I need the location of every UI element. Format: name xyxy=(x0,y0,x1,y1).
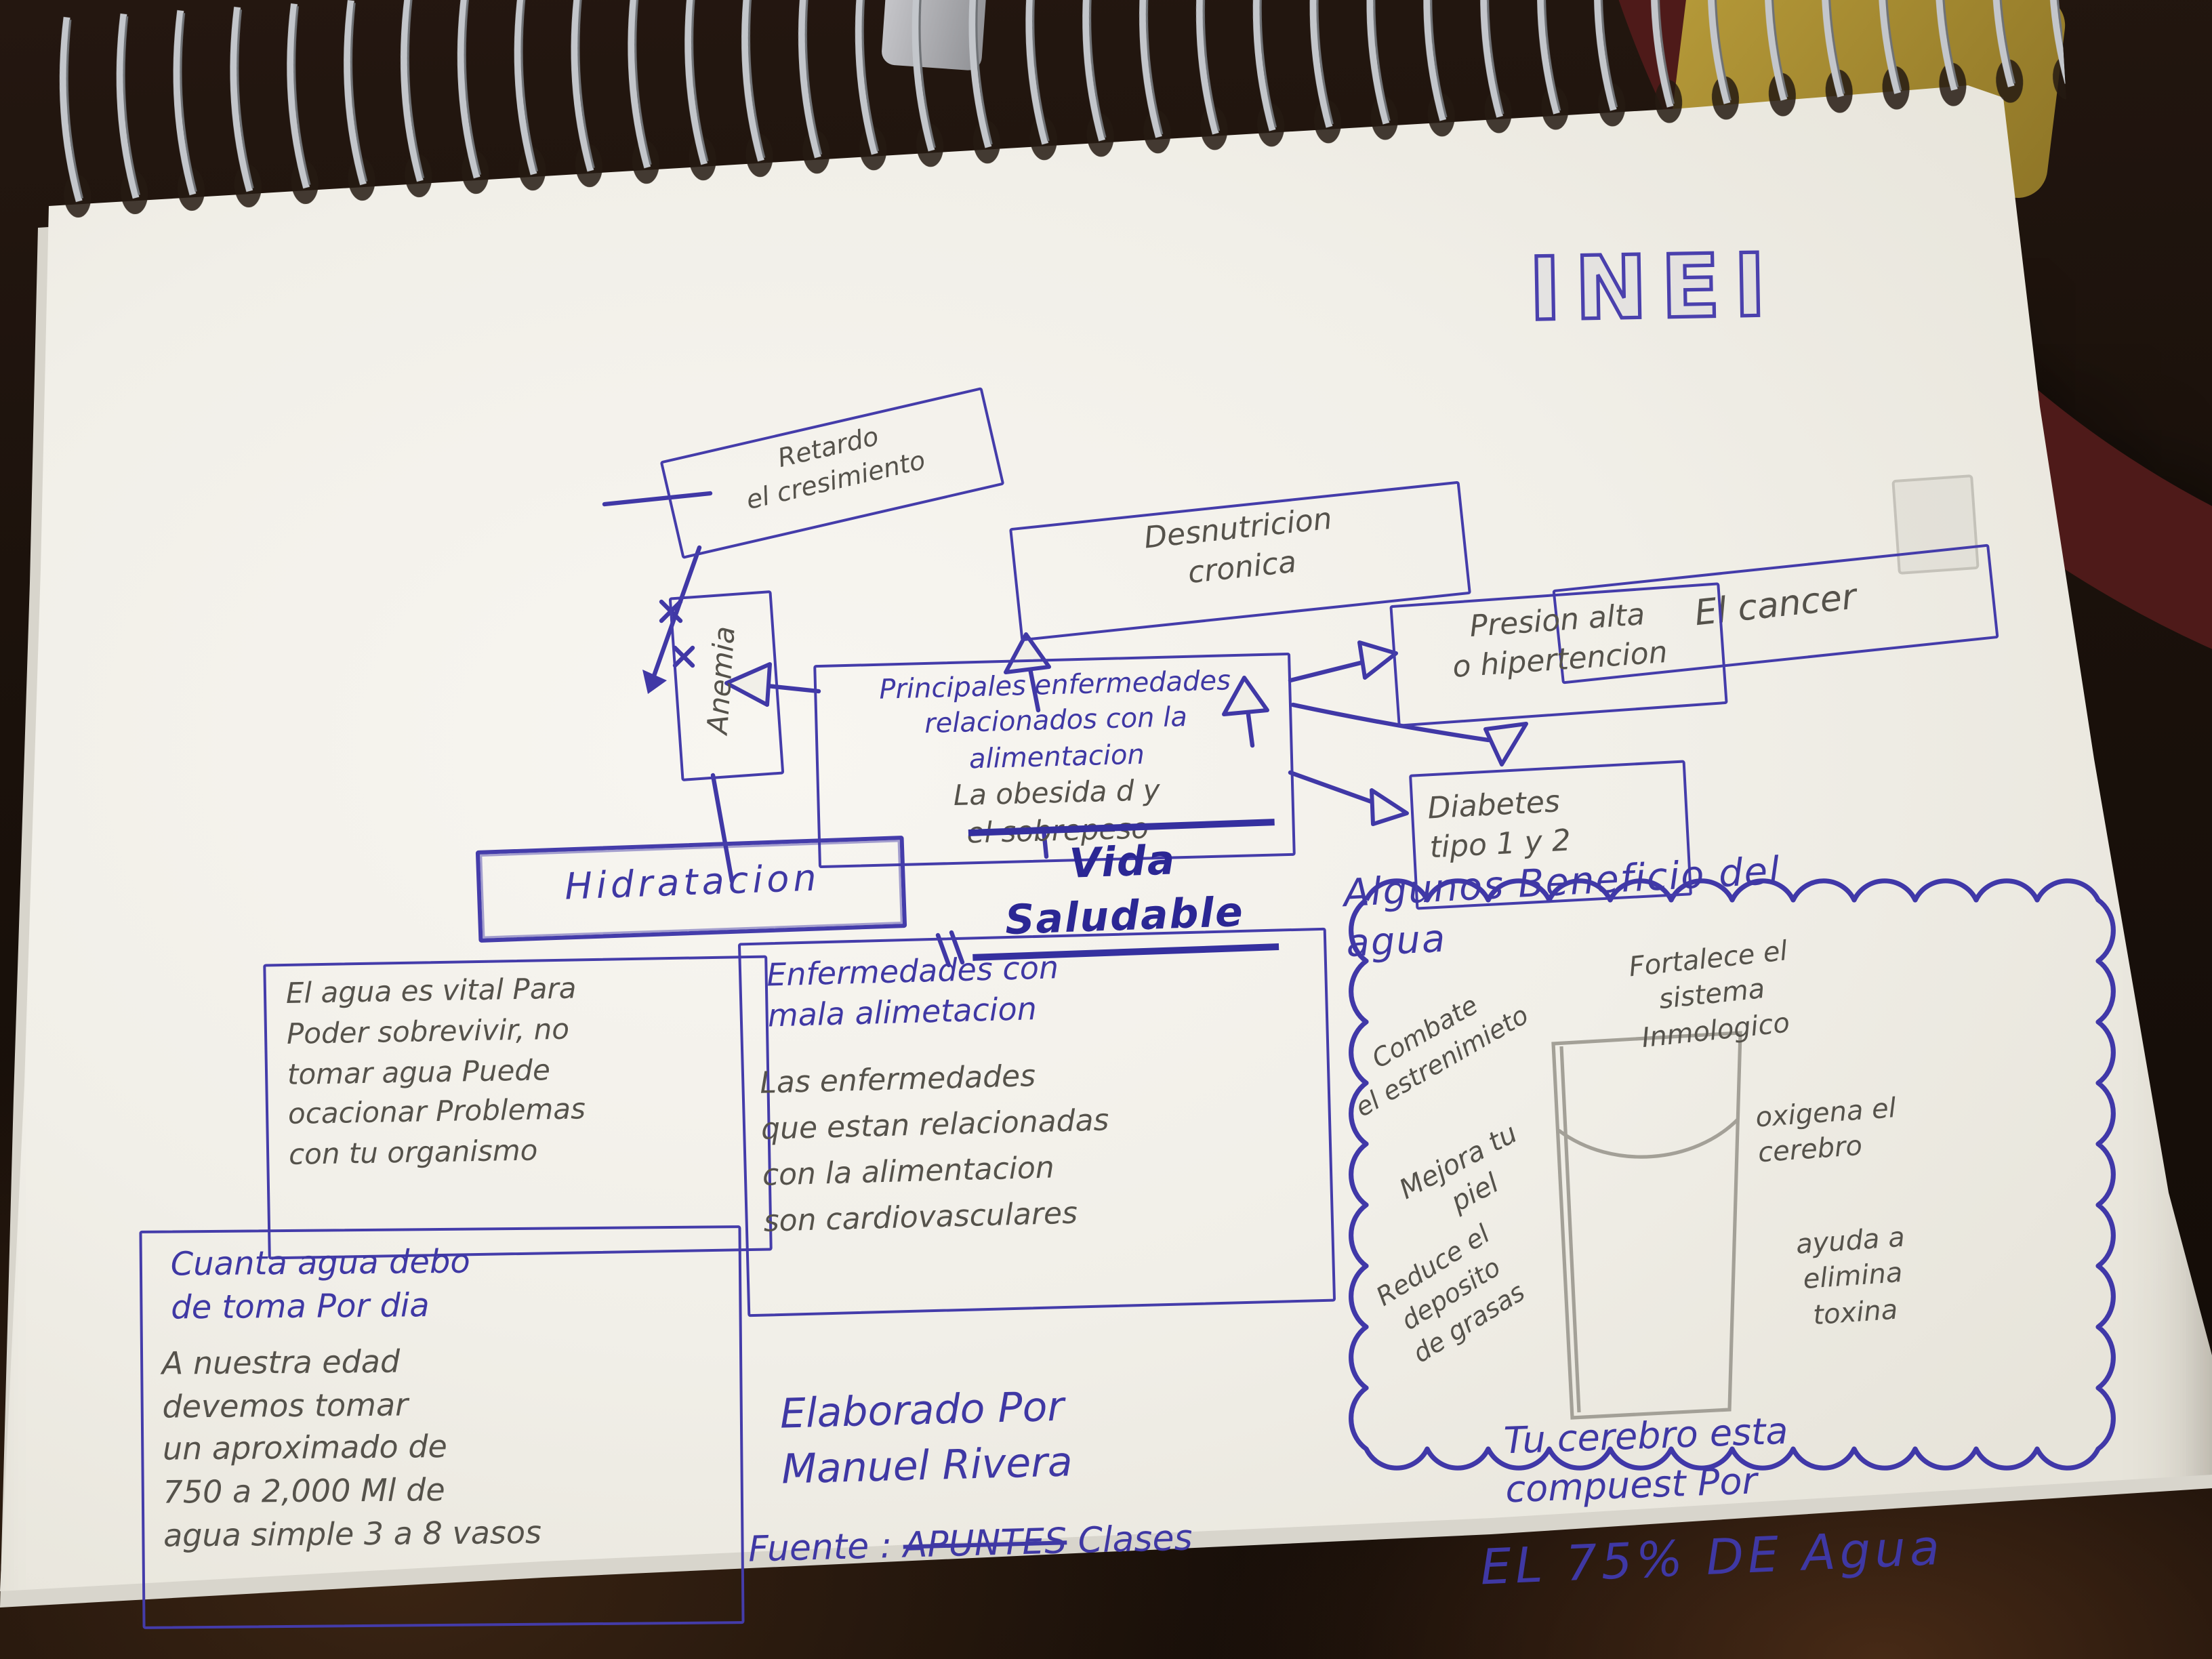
benefit-cerebro: oxigena el cerebro xyxy=(1755,1086,1963,1171)
photo-of-notebook: INEI Retardo el cresimiento Desnutricion… xyxy=(0,0,2212,1659)
arrow-diabetes-shaft xyxy=(1290,773,1377,804)
footer-author: Elaborado Por Manuel Rivera xyxy=(779,1371,1433,1498)
node-cuanta-agua-pencil-text: A nuestra edad devemos tomar un aproxima… xyxy=(162,1339,733,1559)
footer-source-struck-word: APUNTES xyxy=(903,1521,1067,1566)
arrowhead-presion xyxy=(1359,642,1396,678)
node-agua-vital-text: El agua es vital Para Poder sobrevivir, … xyxy=(285,966,750,1176)
node-cuanta-agua-blue-text: Cuanta agua debo de toma Por dia xyxy=(170,1240,713,1330)
node-enfermedades-blue-text: Enfermedades con mala alimetacion xyxy=(766,942,1311,1038)
arrowhead-cancer xyxy=(1486,724,1526,764)
footer-source-label: Fuente : xyxy=(747,1526,893,1571)
inei-logo: INEI xyxy=(1528,237,1780,341)
arrow-presion-shaft xyxy=(1290,661,1366,680)
water-glass-sketch xyxy=(1553,1033,1740,1418)
benefit-toxinas: ayuda a elimina toxina xyxy=(1748,1216,1958,1337)
node-enfermedades-pencil-text: Las enfermedades que estan relacionadas … xyxy=(760,1047,1320,1246)
node-principales-blue-text: Principales enfermedades relacionados co… xyxy=(831,661,1281,780)
footer-source-rest: Clases xyxy=(1078,1518,1193,1561)
arrowhead-diabetes xyxy=(1372,790,1407,824)
